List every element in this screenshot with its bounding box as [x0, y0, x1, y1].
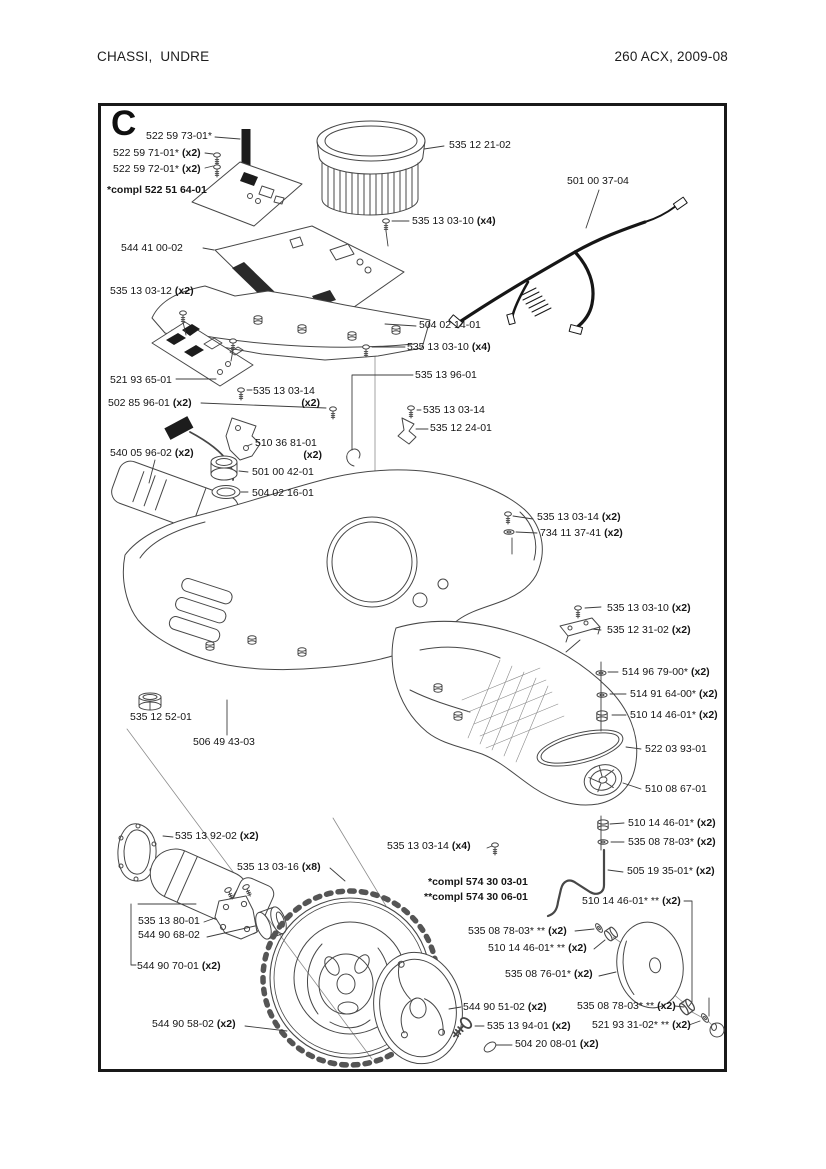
- part-label: 544 90 51-02(x2): [463, 1001, 547, 1013]
- part-label: 522 59 73-01*: [146, 130, 215, 142]
- part-label: 501 00 37-04: [567, 175, 632, 187]
- part-label-compl: *compl 574 30 03-01: [428, 876, 531, 888]
- part-label: 535 12 31-02(x2): [607, 624, 691, 636]
- part-label: 514 91 64-00*(x2): [630, 688, 718, 700]
- part-label: 535 13 03-10(x2): [607, 602, 691, 614]
- part-top-housing: [317, 121, 425, 215]
- part-label: 505 19 35-01*(x2): [627, 865, 715, 877]
- part-cap-and-ring: [211, 456, 240, 499]
- part-label: 510 14 46-01*(x2): [630, 709, 718, 721]
- part-label: 510 36 81-01(x2): [255, 437, 322, 461]
- part-label: 522 03 93-01: [645, 743, 710, 755]
- part-label: 535 13 03-10(x4): [412, 215, 496, 227]
- part-label: 522 59 71-01*(x2): [113, 147, 201, 159]
- part-label: 535 13 03-10(x4): [407, 341, 491, 353]
- part-label: 521 93 65-01: [110, 374, 175, 386]
- parts-catalog-page: CHASSI, UNDRE 260 ACX, 2009-08 C: [0, 0, 826, 1169]
- part-label: 510 14 46-01*(x2): [628, 817, 716, 829]
- part-label: 544 90 68-02: [138, 929, 203, 941]
- part-label: 535 13 03-14(x2): [253, 385, 320, 409]
- part-label: 544 41 00-02: [121, 242, 186, 254]
- part-label: 535 08 76-01*(x2): [505, 968, 593, 980]
- part-label: 506 49 43-03: [193, 736, 258, 748]
- part-label: 535 13 96-01: [415, 369, 480, 381]
- part-label: 535 13 80-01: [138, 915, 203, 927]
- part-label: 535 12 21-02: [449, 139, 514, 151]
- part-label: 535 13 03-14(x4): [387, 840, 471, 852]
- part-label: 544 90 70-01(x2): [137, 960, 221, 972]
- part-label: 535 13 03-12(x2): [110, 285, 194, 297]
- part-antenna-board: [192, 129, 302, 226]
- part-label: 540 05 96-02(x2): [110, 447, 194, 459]
- part-label: 504 02 16-01: [252, 487, 317, 499]
- part-label: 535 08 78-03* **(x2): [577, 1000, 676, 1012]
- part-label: 535 13 94-01(x2): [487, 1020, 571, 1032]
- part-label: 734 11 37-41(x2): [540, 527, 623, 539]
- part-label: 504 20 08-01(x2): [515, 1038, 599, 1050]
- part-label: 510 14 46-01* **(x2): [488, 942, 587, 954]
- part-label: 535 13 03-16(x8): [237, 861, 321, 873]
- part-label: 521 93 31-02* **(x2): [592, 1019, 691, 1031]
- part-label: 535 13 03-14(x2): [537, 511, 621, 523]
- part-label: 544 90 58-02(x2): [152, 1018, 236, 1030]
- part-label: 514 96 79-00*(x2): [622, 666, 710, 678]
- part-label: 535 12 24-01: [430, 422, 495, 434]
- exploded-diagram-drawing: [0, 0, 826, 1169]
- part-label: 502 85 96-01(x2): [108, 397, 192, 409]
- part-label: 510 08 67-01: [645, 783, 710, 795]
- part-label-compl: *compl 522 51 64-01: [107, 184, 210, 196]
- part-label: 510 14 46-01* **(x2): [582, 895, 681, 907]
- part-label: 522 59 72-01*(x2): [113, 163, 201, 175]
- part-label: 535 13 03-14: [423, 404, 488, 416]
- part-label: 504 02 14-01: [419, 319, 484, 331]
- part-label: 535 08 78-03* **(x2): [468, 925, 567, 937]
- part-label-compl: **compl 574 30 06-01: [424, 891, 531, 903]
- part-label: 535 08 78-03*(x2): [628, 836, 716, 848]
- part-label: 535 12 52-01: [130, 711, 195, 723]
- part-label: 535 13 92-02(x2): [175, 830, 259, 842]
- part-label: 501 00 42-01: [252, 466, 317, 478]
